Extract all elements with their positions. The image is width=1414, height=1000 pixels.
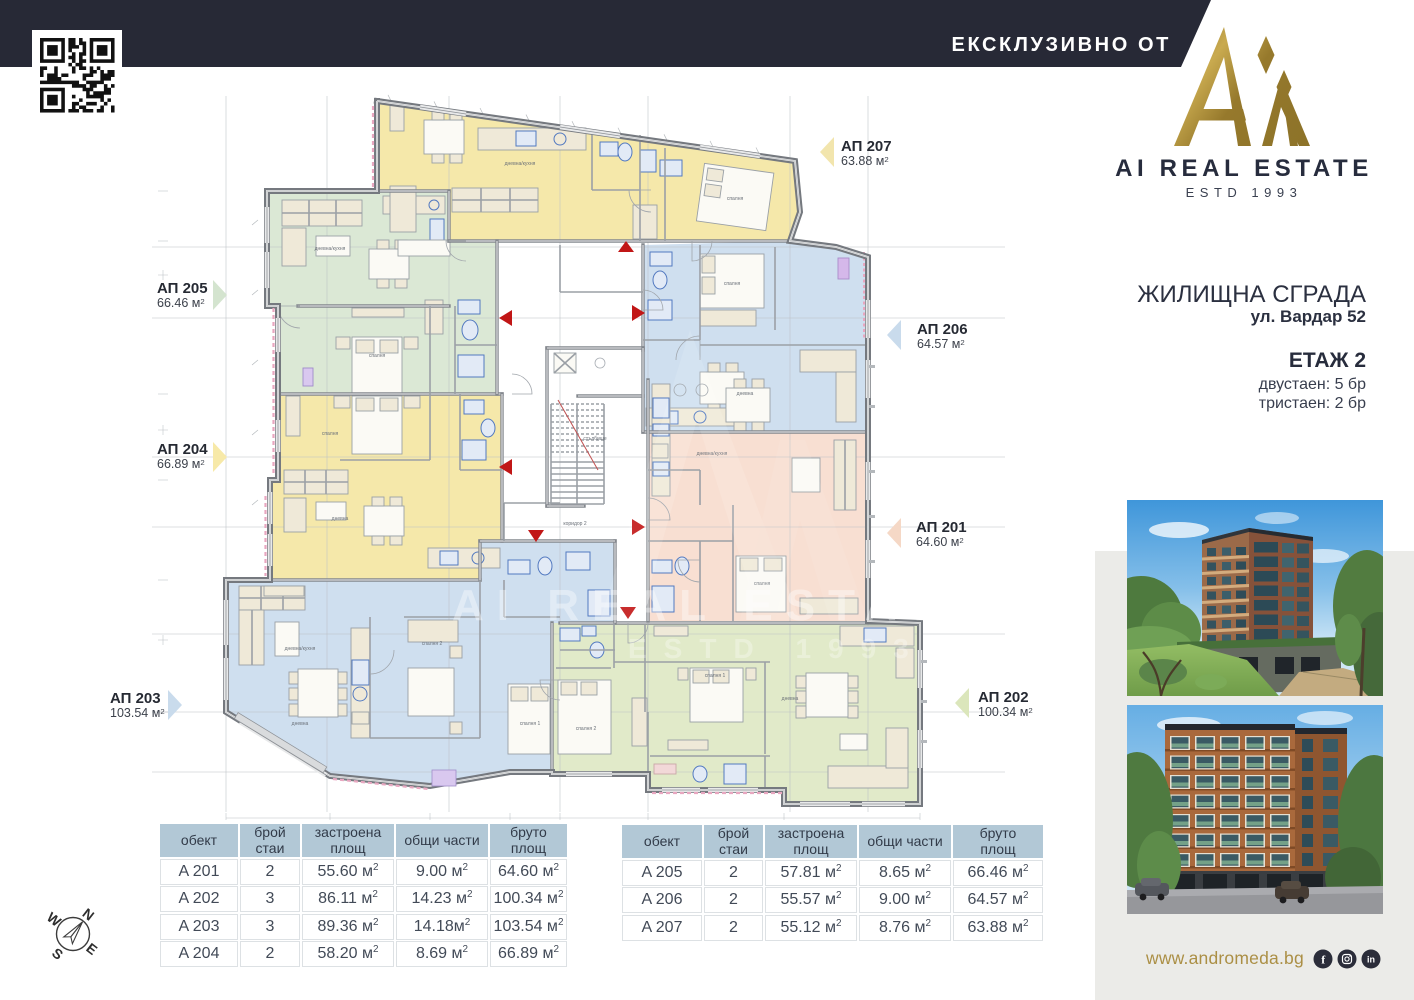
svg-text:спалня 1: спалня 1	[705, 673, 726, 679]
svg-text:спалня 2: спалня 2	[576, 726, 597, 732]
svg-text:дневна: дневна	[737, 391, 754, 397]
svg-text:спалня 1: спалня 1	[520, 721, 541, 727]
svg-text:дневна/кухня: дневна/кухня	[315, 246, 346, 252]
svg-text:дневна: дневна	[782, 696, 799, 702]
svg-text:дневна: дневна	[332, 516, 349, 522]
svg-text:спалня: спалня	[724, 281, 741, 287]
svg-text:in: in	[1367, 955, 1375, 965]
svg-text:спалня: спалня	[727, 196, 744, 202]
svg-text:E: E	[83, 940, 100, 958]
svg-text:спалня 2: спалня 2	[422, 641, 443, 647]
svg-text:S: S	[49, 945, 66, 963]
svg-text:дневна/кухня: дневна/кухня	[505, 161, 536, 167]
svg-text:W: W	[44, 909, 65, 930]
svg-text:ESTD 1993: ESTD 1993	[628, 633, 926, 664]
svg-text:спалня: спалня	[369, 353, 386, 359]
svg-text:стълбище: стълбище	[583, 436, 607, 442]
svg-text:дневна: дневна	[292, 721, 309, 727]
svg-text:AI REAL ESTATE: AI REAL ESTATE	[452, 581, 988, 630]
svg-text:спалня: спалня	[322, 431, 339, 437]
svg-text:коридор 2: коридор 2	[563, 521, 586, 527]
svg-text:дневна/кухня: дневна/кухня	[285, 646, 316, 652]
